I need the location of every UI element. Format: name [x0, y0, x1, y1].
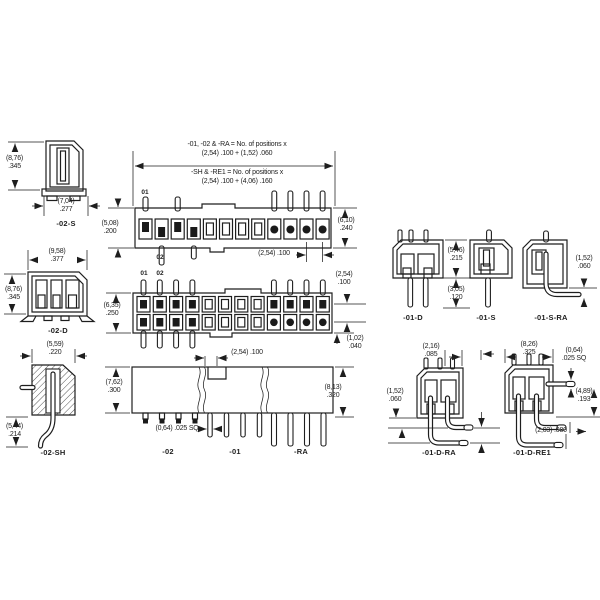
dim-mm: (8,26): [510, 341, 548, 349]
view-label-01-d-re1: -01-D-RE1: [496, 448, 568, 457]
dim-01dre1-top: (8,26) .325: [510, 341, 548, 357]
dim-mm: (5,08): [96, 220, 124, 228]
dim-mm: (0,64): [553, 347, 595, 355]
side-view-tails: [105, 356, 354, 446]
dim-single-row-height: (5,08) .200: [96, 220, 124, 236]
dim-mm: (5,59): [35, 341, 75, 349]
dim-in: .040: [340, 343, 370, 351]
dim-01dre1-right: (4,89) .193: [572, 388, 596, 404]
dim-in: .193: [572, 396, 596, 404]
dim-mm: (6,10): [332, 217, 360, 225]
dim-02d-height: (8,76) .345: [0, 286, 27, 302]
dim-in: .025 SQ: [553, 355, 595, 363]
dim-in: .215: [441, 255, 471, 263]
pin-number-1: 01: [137, 270, 151, 277]
dim-mm: (5,46): [441, 247, 471, 255]
dim-01dre1-bottom: (2,03) .080: [526, 427, 576, 435]
dim-side-pin-sq: (0,64) .025 SQ: [148, 425, 206, 433]
dim-single-row-pin-height: (6,10) .240: [332, 217, 360, 233]
connector-technical-drawing: -01, -02 & -RA = No. of positions x (2,5…: [0, 0, 600, 600]
view-label-01-s: -01-S: [462, 313, 510, 322]
note-formula-1-values: (2,54) .100 + (1,52) .060: [137, 150, 337, 158]
dim-double-row-tail: (1,02) .040: [340, 335, 370, 351]
view-label-01-d-ra: -01-D-RA: [406, 448, 472, 457]
dim-mm: (1,52): [381, 388, 409, 396]
dim-in: .277: [42, 206, 90, 214]
note-formula-2-values: (2,54) .100 + (4,06) .160: [137, 178, 337, 186]
dim-mm: (7,04): [42, 198, 90, 206]
dim-side-height: (7,62) .300: [99, 379, 129, 395]
dim-in: .220: [35, 349, 75, 357]
dim-in: .100: [329, 279, 359, 287]
dim-in: .120: [440, 294, 472, 302]
dim-in: .085: [415, 351, 447, 359]
dim-mm: (3,05): [440, 286, 472, 294]
dim-in: .320: [318, 392, 348, 400]
dim-01dra-left: (1,52) .060: [381, 388, 409, 404]
dim-in: .060: [569, 263, 599, 271]
dim-01dre1-pin-sq: (0,64) .025 SQ: [553, 347, 595, 363]
double-row-header-view: [106, 280, 366, 348]
dim-side-height-right: (8,13) .320: [318, 384, 348, 400]
dim-01d-pin-length: (3,05) .120: [440, 286, 472, 302]
view-label-02-d: -02-D: [29, 326, 87, 335]
dim-mm: (9,58): [33, 248, 81, 256]
dim-mm: (1,52): [569, 255, 599, 263]
view-label-02-s: -02-S: [37, 219, 95, 228]
dim-mm: (8,76): [1, 155, 28, 163]
tail-label-01: -01: [219, 447, 251, 456]
connector-01-s-view: [470, 230, 512, 307]
dim-mm: (7,62): [99, 379, 129, 387]
dim-single-row-pitch: (2,54) .100: [252, 250, 296, 258]
view-label-01-d: -01-D: [392, 313, 434, 322]
dim-in: .345: [0, 294, 27, 302]
view-label-02-sh: -02-SH: [23, 448, 83, 457]
pin-number-2: 02: [153, 270, 167, 277]
dim-in: .250: [97, 310, 127, 318]
dim-in: .325: [510, 349, 548, 357]
dim-in: .300: [99, 387, 129, 395]
view-label-01-s-ra: -01-S-RA: [520, 313, 582, 322]
dim-in: .060: [381, 396, 409, 404]
dim-double-row-height: (6,35) .250: [97, 302, 127, 318]
dim-in: .377: [33, 256, 81, 264]
dim-02s-width: (7,04) .277: [42, 198, 90, 214]
dim-in: .214: [1, 431, 28, 439]
note-formula-2: -SH & -RE1 = No. of positions x: [137, 169, 337, 177]
dim-01d-body-height: (5,46) .215: [441, 247, 471, 263]
dim-side-pitch: (2,54) .100: [223, 349, 271, 357]
dim-02d-width: (9,58) .377: [33, 248, 81, 264]
dim-mm: (6,35): [97, 302, 127, 310]
dim-02sh-height: (5,44) .214: [1, 423, 28, 439]
drawing-canvas: [0, 0, 600, 600]
pin-number-1: 01: [138, 189, 152, 196]
dim-in: .240: [332, 225, 360, 233]
dim-mm: (8,76): [0, 286, 27, 294]
dim-in: .200: [96, 228, 124, 236]
dim-double-row-pitch: (2,54) .100: [329, 271, 359, 287]
dim-02sh-width: (5,59) .220: [35, 341, 75, 357]
dim-mm: (4,89): [572, 388, 596, 396]
dim-01dra-top: (2,16) .085: [415, 343, 447, 359]
dim-02s-height: (8,76) .345: [1, 155, 28, 171]
dim-mm: (2,16): [415, 343, 447, 351]
dim-01sra-drop: (1,52) .060: [569, 255, 599, 271]
dim-mm: (2,54): [329, 271, 359, 279]
note-formula-1: -01, -02 & -RA = No. of positions x: [137, 141, 337, 149]
dim-mm: (5,44): [1, 423, 28, 431]
dim-in: .345: [1, 163, 28, 171]
tail-label-ra: -RA: [285, 447, 317, 456]
tail-label-02: -02: [152, 447, 184, 456]
dim-mm: (1,02): [340, 335, 370, 343]
dim-mm: (8,13): [318, 384, 348, 392]
pin-number-2: 02: [153, 254, 167, 261]
